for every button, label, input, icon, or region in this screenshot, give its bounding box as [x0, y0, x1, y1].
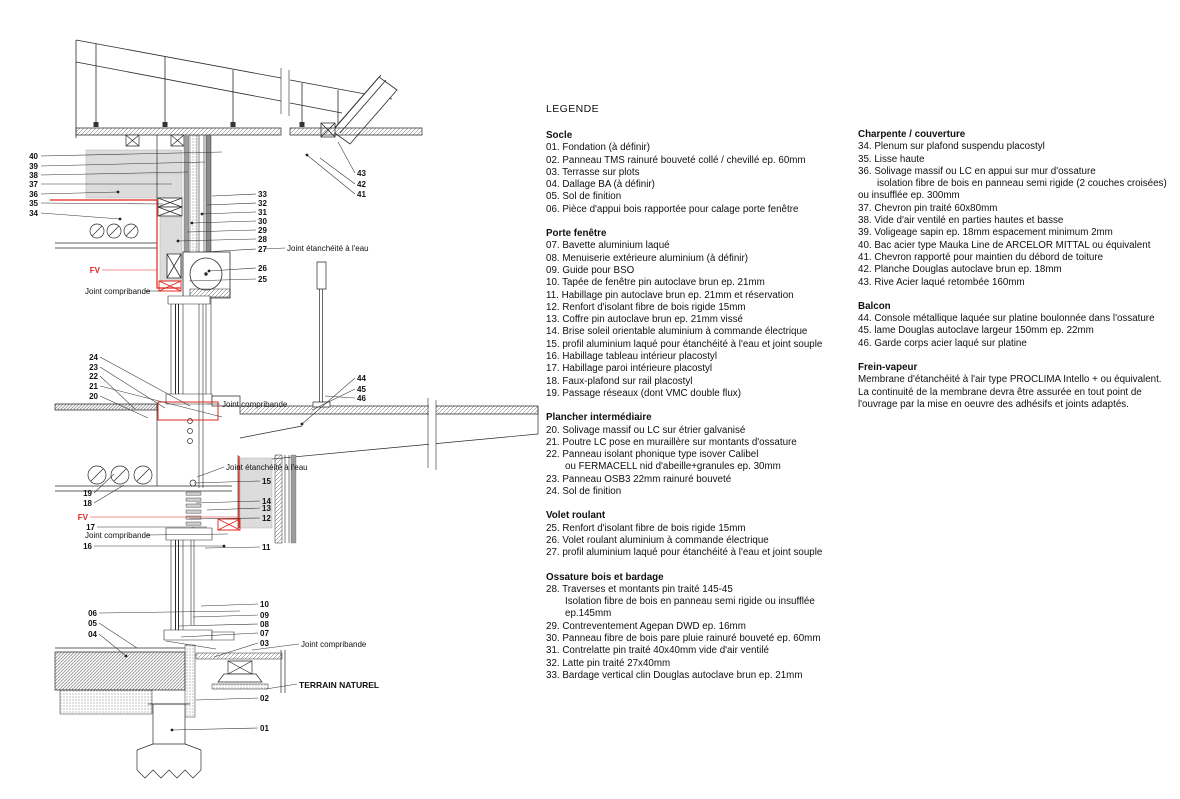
legend-title: LEGENDE: [546, 103, 599, 115]
legend-item: 40. Bac acier type Mauka Line de ARCELOR…: [858, 240, 1180, 252]
callout-number: 10: [260, 600, 269, 609]
legend-item: 21. Poutre LC pose en muraillère sur mon…: [546, 437, 858, 449]
fv-label: FV: [90, 266, 101, 275]
legend-item: 03. Terrasse sur plots: [546, 167, 858, 179]
legend-item: 07. Bavette aluminium laqué: [546, 240, 858, 252]
legend-section-heading: Volet roulant: [546, 510, 858, 522]
legend-section-heading: Charpente / couverture: [858, 129, 1180, 141]
legend-item: 20. Solivage massif ou LC sur étrier gal…: [546, 425, 858, 437]
legend-item: 12. Renfort d'isolant fibre de bois rigi…: [546, 302, 858, 314]
callout-dot: [191, 222, 194, 225]
callout-number: 11: [262, 543, 271, 552]
callout-number: 06: [88, 609, 97, 618]
legend-section: Charpente / couverture34. Plenum sur pla…: [858, 129, 1180, 289]
callout-number: 34: [29, 209, 38, 218]
legend-column-2: Charpente / couverture34. Plenum sur pla…: [858, 129, 1180, 423]
legend-item: 17. Habillage paroi intérieure placostyl: [546, 363, 858, 375]
legend-item: 09. Guide pour BSO: [546, 265, 858, 277]
section-drawing: 4039383736353443424133323130292827Joint …: [0, 0, 540, 799]
legend-section-heading: Ossature bois et bardage: [546, 572, 858, 584]
callout-number: 32: [258, 199, 267, 208]
legend-paragraph-line: Membrane d'étanchéité à l'air type PROCL…: [858, 374, 1180, 386]
legend-item: 38. Vide d'air ventilé en parties hautes…: [858, 215, 1180, 227]
callout-number: 26: [258, 264, 267, 273]
callout-leader: [41, 213, 120, 219]
callout-leader: [100, 367, 165, 408]
legend-section-heading: Frein-vapeur: [858, 362, 1180, 374]
callout-number: 16: [83, 542, 92, 551]
callout-leader: [94, 485, 124, 503]
legend-item: 01. Fondation (à définir): [546, 142, 858, 154]
legend-item: 11. Habillage pin autoclave brun ep. 21m…: [546, 290, 858, 302]
legend-item: 22. Panneau isolant phonique type isover…: [546, 449, 858, 461]
services-ducts-lower: [88, 466, 152, 484]
fv-label: FV: [78, 513, 89, 522]
legend-item: 30. Panneau fibre de bois pare pluie rai…: [546, 633, 858, 645]
callout-number: 04: [88, 630, 97, 639]
legend-item: 10. Tapée de fenêtre pin autoclave brun …: [546, 277, 858, 289]
legend-item: 19. Passage réseaux (dont VMC double flu…: [546, 388, 858, 400]
callout-leader: [187, 230, 256, 232]
page: 4039383736353443424133323130292827Joint …: [0, 0, 1180, 799]
callout-number: 18: [83, 499, 92, 508]
callout-dot: [125, 655, 128, 658]
callout-leader: [212, 194, 256, 196]
legend-item-continuation: Isolation fibre de bois en panneau semi …: [565, 596, 858, 621]
ceiling-hanger-rods: [94, 44, 339, 127]
callout-number: 02: [260, 694, 269, 703]
callout-leader: [207, 203, 256, 205]
callout-number: 24: [89, 353, 98, 362]
floor-slab: [55, 652, 185, 690]
drawing-annotation: Joint compribande: [301, 640, 367, 649]
callout-number: 36: [29, 190, 38, 199]
legend-section: Socle01. Fondation (à définir)02. Pannea…: [546, 130, 858, 216]
callout-number: 40: [29, 152, 38, 161]
legend-item: 06. Pièce d'appui bois rapportée pour ca…: [546, 204, 858, 216]
terrace-deck: [196, 653, 282, 659]
callout-dot: [301, 423, 304, 426]
legend-item: 43. Rive Acier laqué retombée 160mm: [858, 277, 1180, 289]
callout-number: 44: [357, 374, 366, 383]
legend-item: 28. Traverses et montants pin traité 145…: [546, 584, 858, 596]
legend-paragraph-line: La continuité de la membrane devra être …: [858, 387, 1180, 399]
legend-item: 23. Panneau OSB3 22mm rainuré bouveté: [546, 474, 858, 486]
callout-number: 37: [29, 180, 38, 189]
legend-item: 35. Lisse haute: [858, 154, 1180, 166]
legend-item: 14. Brise soleil orientable aluminium à …: [546, 326, 858, 338]
drawing-annotation: Joint compribande: [222, 400, 288, 409]
legend-item: 08. Menuiserie extérieure aluminium (à d…: [546, 253, 858, 265]
suspended-ceiling: [76, 128, 422, 146]
roller-shutter-box: [167, 252, 230, 398]
legend-item: 33. Bardage vertical clin Douglas autocl…: [546, 670, 858, 682]
callout-number: 21: [89, 382, 98, 391]
callout-number: 01: [260, 724, 269, 733]
callout-leader: [100, 357, 190, 406]
legend-item: 27. profil aluminium laqué pour étanchéi…: [546, 547, 858, 559]
callout-number: 27: [258, 245, 267, 254]
callout-number: 41: [357, 190, 366, 199]
callout-leader: [201, 604, 258, 606]
legend-section: Volet roulant25. Renfort d'isolant fibre…: [546, 510, 858, 559]
callout-number: 09: [260, 611, 269, 620]
callout-number: 19: [83, 489, 92, 498]
callout-leader: [266, 684, 297, 689]
legend-section-heading: Plancher intermédiaire: [546, 412, 858, 424]
callout-number: 35: [29, 199, 38, 208]
callout-leader: [196, 698, 258, 700]
callout-number: 28: [258, 235, 267, 244]
legend-item: 26. Volet roulant aluminium à commande é…: [546, 535, 858, 547]
callout-leader: [99, 623, 137, 648]
callout-number: 07: [260, 629, 269, 638]
tms-panel: [185, 645, 195, 717]
callout-number: 29: [258, 226, 267, 235]
bso-slats: [186, 480, 201, 534]
guardrail-post: [313, 262, 330, 407]
callout-number: 13: [262, 504, 271, 513]
callout-dot: [177, 240, 180, 243]
legend-item: 41. Chevron rapporté pour maintien du dé…: [858, 252, 1180, 264]
callout-leader: [99, 611, 240, 613]
callout-number: 42: [357, 180, 366, 189]
callout-number: 20: [89, 392, 98, 401]
legend-item: 02. Panneau TMS rainuré bouveté collé / …: [546, 155, 858, 167]
legend-item: 44. Console métallique laquée sur platin…: [858, 313, 1180, 325]
callout-number: 12: [262, 514, 271, 523]
callout-dot: [119, 218, 122, 221]
legend-item: 25. Renfort d'isolant fibre de bois rigi…: [546, 523, 858, 535]
legend-section-heading: Socle: [546, 130, 858, 142]
callout-number: 38: [29, 171, 38, 180]
balcony: [240, 262, 538, 472]
callout-leader: [41, 203, 163, 204]
callout-leader: [94, 474, 114, 493]
legend-item: 34. Plenum sur plafond suspendu placosty…: [858, 141, 1180, 153]
callout-number: 30: [258, 217, 267, 226]
upper-window: [166, 296, 212, 488]
legend-section-heading: Porte fenêtre: [546, 228, 858, 240]
callout-dot: [201, 213, 204, 216]
legend-item: 16. Habillage tableau intérieur placosty…: [546, 351, 858, 363]
legend-item: 05. Sol de finition: [546, 191, 858, 203]
legend-section: Ossature bois et bardage28. Traverses et…: [546, 572, 858, 683]
callout-number: 39: [29, 162, 38, 171]
callout-number: 05: [88, 619, 97, 628]
drawing-annotation: Joint étanchéité à l'eau: [287, 244, 369, 253]
legend-column-1: Socle01. Fondation (à définir)02. Pannea…: [546, 130, 858, 694]
callout-leader: [338, 142, 355, 173]
callout-dot: [117, 191, 120, 194]
callout-leader: [178, 239, 256, 241]
terrain-label: TERRAIN NATUREL: [299, 680, 379, 690]
vapour-barrier-membrane: [50, 200, 240, 530]
callout-dot: [171, 729, 174, 732]
services-ducts: [90, 224, 138, 238]
legend-section: Frein-vapeurMembrane d'étanchéité à l'ai…: [858, 362, 1180, 411]
legend-item: 15. profil aluminium laqué pour étanchéi…: [546, 339, 858, 351]
drawing-annotation: Joint compribande: [85, 287, 151, 296]
legend-item: 29. Contreventement Agepan DWD ep. 16mm: [546, 621, 858, 633]
callout-number: 15: [262, 477, 271, 486]
legend-section: Porte fenêtre07. Bavette aluminium laqué…: [546, 228, 858, 400]
callout-leader: [193, 615, 258, 617]
legend-paragraph-line: l'ouvrage par la mise en oeuvre des adhé…: [858, 399, 1180, 411]
legend-item: 04. Dallage BA (à définir): [546, 179, 858, 191]
callout-leader: [205, 547, 260, 548]
callout-number: 08: [260, 620, 269, 629]
callout-number: 23: [89, 363, 98, 372]
callout-number: 31: [258, 208, 267, 217]
callout-number: 45: [357, 385, 366, 394]
legend-item: 32. Latte pin traité 27x40mm: [546, 658, 858, 670]
drawing-annotation: Joint compribande: [85, 531, 151, 540]
callout-leader: [302, 378, 355, 424]
callout-number: 33: [258, 190, 267, 199]
underslab-insulation: [60, 690, 152, 714]
legend-item: 39. Voligeage sapin ep. 18mm espacement …: [858, 227, 1180, 239]
callout-dot: [306, 154, 309, 157]
callout-leader: [192, 221, 256, 223]
callout-number: 25: [258, 275, 267, 284]
legend-item-continuation: isolation fibre de bois en panneau semi …: [877, 178, 1180, 190]
callout-leader: [197, 467, 224, 477]
legend-item: 37. Chevron pin traité 60x80mm: [858, 203, 1180, 215]
callout-number: 46: [357, 394, 366, 403]
ground-foundation: [55, 645, 285, 778]
callout-leader: [264, 248, 285, 249]
legend-item: 45. lame Douglas autoclave largeur 150mm…: [858, 325, 1180, 337]
callout-number: 03: [260, 639, 269, 648]
callout-number: 22: [89, 372, 98, 381]
legend-item-continuation: ou FERMACELL nid d'abeille+granules ep. …: [565, 461, 858, 473]
legend-item: 42. Planche Douglas autoclave brun ep. 1…: [858, 264, 1180, 276]
legend-item: 36. Solivage massif ou LC en appui sur m…: [858, 166, 1180, 178]
legend-section: Plancher intermédiaire20. Solivage massi…: [546, 412, 858, 498]
legend-item: 13. Coffre pin autoclave brun ep. 21mm v…: [546, 314, 858, 326]
legend-section: Balcon44. Console métallique laquée sur …: [858, 301, 1180, 350]
legend-item-continuation: ou insufflée ep. 300mm: [858, 190, 1180, 202]
terrace-plot: [212, 661, 268, 689]
callout-number: 43: [357, 169, 366, 178]
drawing-annotation: Joint étanchéité à l'eau: [226, 463, 308, 472]
callout-dot: [208, 270, 211, 273]
legend-item: 24. Sol de finition: [546, 486, 858, 498]
legend-item: 18. Faux-plafond sur rail placostyl: [546, 376, 858, 388]
legend-section-heading: Balcon: [858, 301, 1180, 313]
callout-dot: [223, 545, 226, 548]
legend-item: 31. Contrelatte pin traité 40x40mm vide …: [546, 645, 858, 657]
legend-item: 46. Garde corps acier laqué sur platine: [858, 338, 1180, 350]
callout-leader: [307, 155, 355, 194]
